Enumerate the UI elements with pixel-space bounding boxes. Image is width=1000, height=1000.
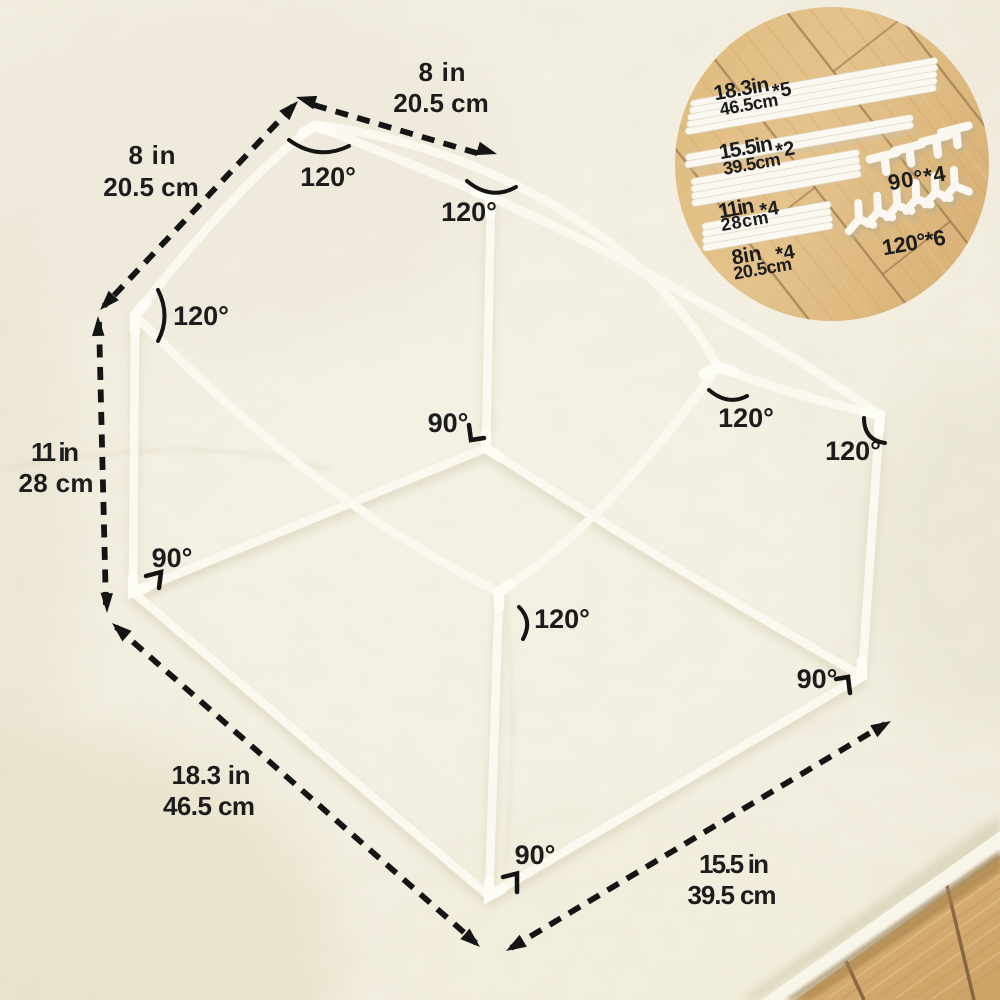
svg-text:18.3 in: 18.3 in — [172, 760, 251, 790]
svg-text:20.5 cm: 20.5 cm — [393, 88, 488, 118]
svg-text:39.5 cm: 39.5 cm — [688, 880, 777, 910]
svg-text:8 in: 8 in — [129, 140, 176, 170]
svg-text:28 cm: 28 cm — [19, 468, 94, 498]
svg-text:46.5 cm: 46.5 cm — [163, 791, 255, 821]
svg-text:120°: 120° — [718, 403, 774, 433]
svg-text:120°: 120° — [173, 301, 229, 331]
svg-text:120°: 120° — [300, 162, 356, 192]
svg-text:90°: 90° — [428, 408, 469, 438]
svg-text:20.5 cm: 20.5 cm — [103, 172, 198, 202]
svg-text:120°: 120° — [534, 604, 590, 634]
svg-text:90°: 90° — [797, 664, 838, 694]
svg-text:90°: 90° — [152, 543, 193, 573]
svg-text:11 in: 11 in — [31, 437, 79, 467]
svg-text:120°: 120° — [441, 197, 497, 227]
svg-text:90°: 90° — [515, 840, 556, 870]
svg-text:8 in: 8 in — [419, 57, 466, 87]
svg-text:15.5 in: 15.5 in — [699, 849, 769, 879]
